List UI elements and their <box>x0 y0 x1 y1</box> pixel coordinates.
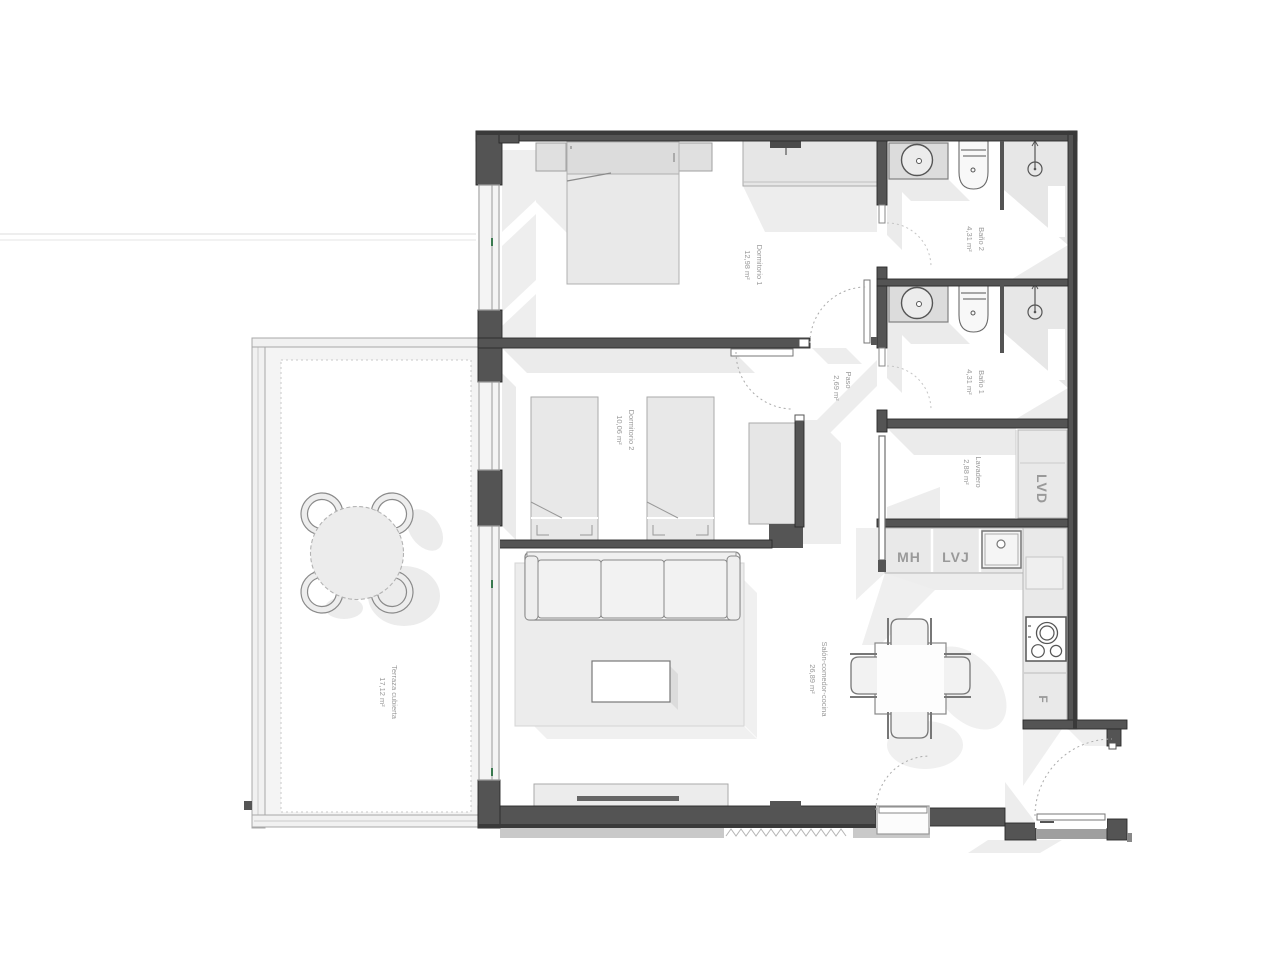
svg-text:4,31 m²: 4,31 m² <box>965 226 974 252</box>
svg-text:Salón-comedor-cocina: Salón-comedor-cocina <box>820 641 829 717</box>
svg-text:2,88 m²: 2,88 m² <box>962 459 971 485</box>
svg-text:F: F <box>1036 695 1050 702</box>
svg-text:10,06 m²: 10,06 m² <box>615 415 624 445</box>
svg-text:LVJ: LVJ <box>942 549 970 565</box>
svg-text:26,89 m²: 26,89 m² <box>808 664 817 694</box>
svg-text:Baño 1: Baño 1 <box>977 370 986 394</box>
svg-text:12,98 m²: 12,98 m² <box>743 250 752 280</box>
svg-text:4,31 m²: 4,31 m² <box>965 369 974 395</box>
svg-text:Lavadero: Lavadero <box>974 456 983 487</box>
svg-text:17,12 m²: 17,12 m² <box>378 677 387 707</box>
svg-text:LVD: LVD <box>1034 474 1050 504</box>
svg-text:Terraza cubierta: Terraza cubierta <box>390 665 399 720</box>
svg-text:Paso: Paso <box>844 371 853 388</box>
svg-text:Dormitorio 2: Dormitorio 2 <box>627 410 636 451</box>
svg-text:MH: MH <box>897 549 921 565</box>
svg-text:2,69 m²: 2,69 m² <box>832 375 841 401</box>
svg-text:Dormitorio 1: Dormitorio 1 <box>755 245 764 286</box>
svg-text:Baño 2: Baño 2 <box>977 227 986 251</box>
